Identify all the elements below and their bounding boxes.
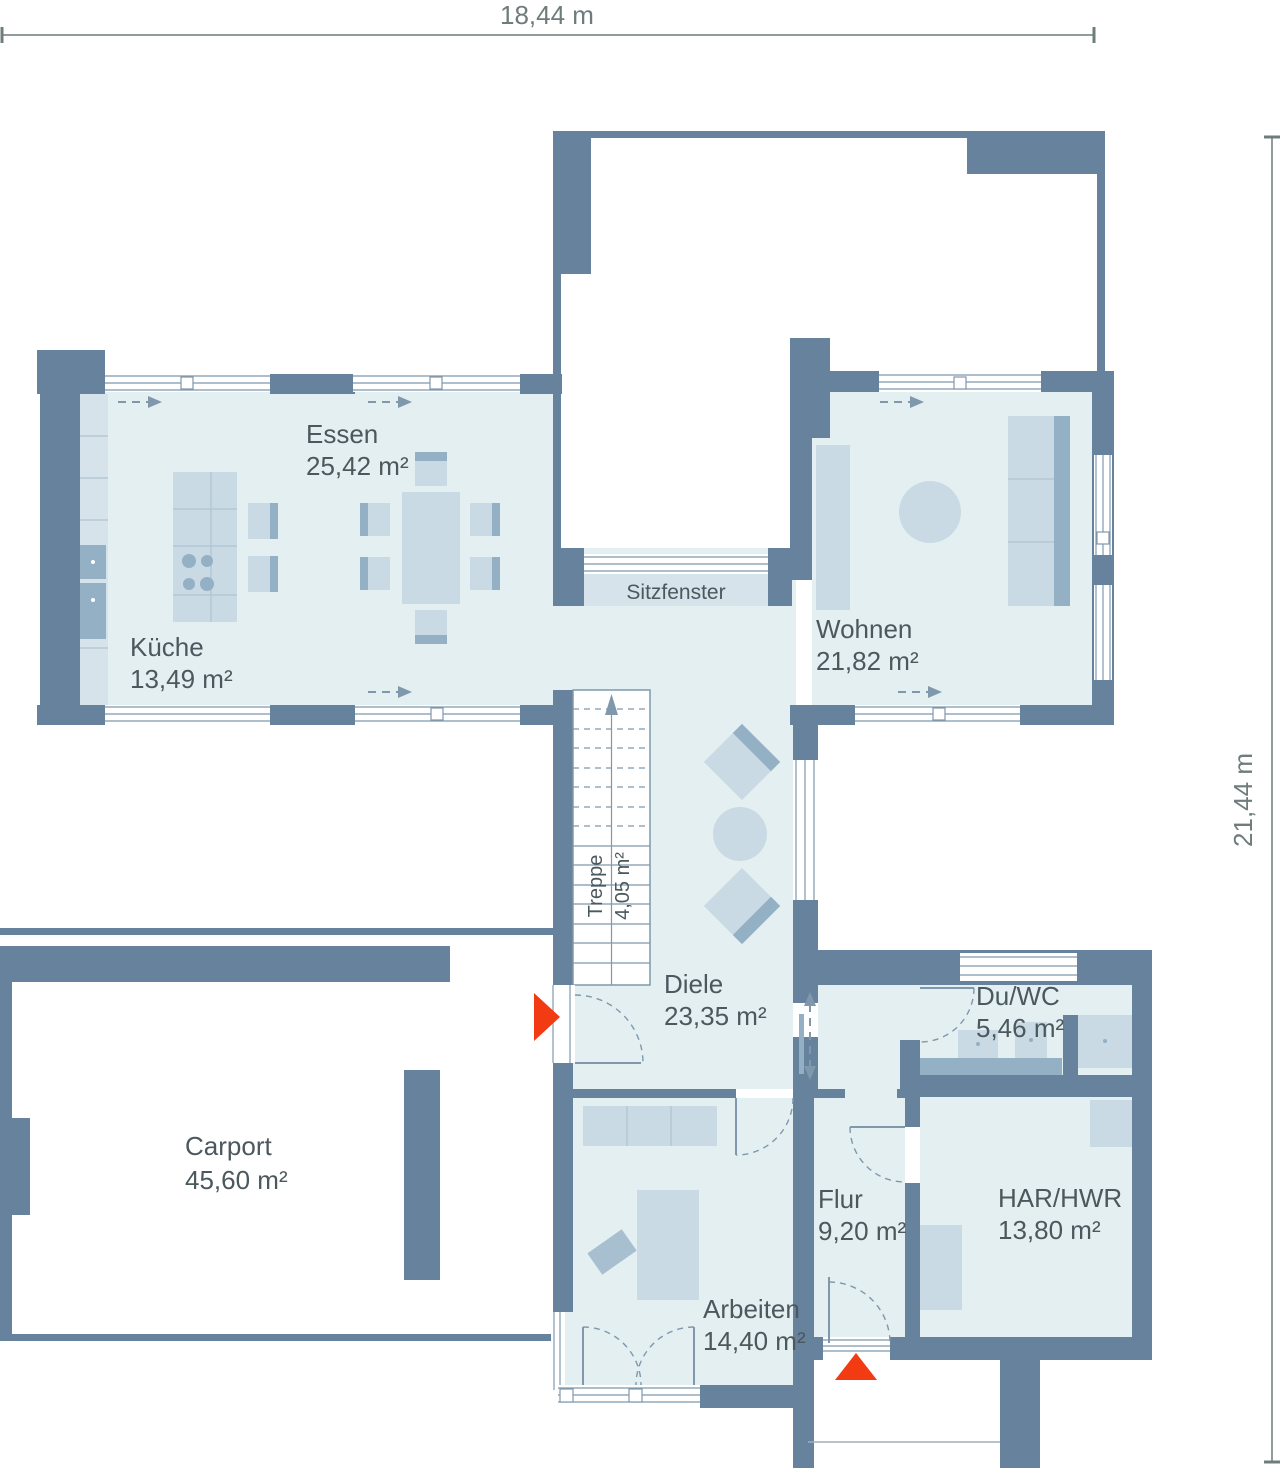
window-wohnen-bottom bbox=[855, 705, 1020, 723]
carport-pillar bbox=[404, 1070, 440, 1280]
appliance bbox=[1090, 1100, 1135, 1147]
label-diele-name: Diele bbox=[664, 969, 723, 999]
cooktop-burner bbox=[183, 578, 195, 590]
window-sitzfenster bbox=[584, 554, 768, 574]
staircase bbox=[573, 690, 650, 985]
dimension-top: 18,44 m bbox=[2, 0, 1094, 43]
window-kueche-top bbox=[105, 374, 270, 392]
label-carport-area: 45,60 m² bbox=[185, 1165, 288, 1195]
label-kueche-name: Küche bbox=[130, 632, 204, 662]
dimension-width-label: 18,44 m bbox=[500, 0, 594, 30]
label-sitzfenster: Sitzfenster bbox=[626, 581, 725, 604]
window-kueche-bottom bbox=[105, 705, 270, 723]
label-arbeiten-name: Arbeiten bbox=[703, 1294, 800, 1324]
label-harhwr-name: HAR/HWR bbox=[998, 1183, 1122, 1213]
label-wohnen-name: Wohnen bbox=[816, 614, 912, 644]
cooktop-burner bbox=[200, 577, 214, 591]
window-wohnen-right-1 bbox=[1094, 455, 1112, 555]
label-flur-area: 9,20 m² bbox=[818, 1216, 906, 1246]
dining-table bbox=[402, 492, 460, 604]
side-table bbox=[713, 807, 767, 861]
office-shelf bbox=[583, 1106, 717, 1146]
window-diele-tall bbox=[793, 760, 818, 900]
coffee-table bbox=[899, 481, 961, 543]
label-essen-name: Essen bbox=[306, 419, 378, 449]
bath-counter bbox=[912, 1058, 1062, 1075]
cooktop-burner bbox=[201, 555, 213, 567]
label-carport-name: Carport bbox=[185, 1131, 272, 1161]
sofa-seat bbox=[1008, 416, 1054, 606]
window-essen-top bbox=[353, 374, 520, 392]
label-wohnen-area: 21,82 m² bbox=[816, 646, 919, 676]
label-diele-area: 23,35 m² bbox=[664, 1001, 767, 1031]
dimension-height-label: 21,44 m bbox=[1228, 753, 1258, 847]
label-arbeiten-area: 14,40 m² bbox=[703, 1326, 806, 1356]
kitchen-fridge bbox=[80, 583, 106, 639]
window-duwc bbox=[960, 953, 1077, 981]
kitchen-island bbox=[173, 472, 237, 622]
side-entrance-arrow-icon bbox=[835, 1353, 877, 1380]
label-flur-name: Flur bbox=[818, 1184, 863, 1214]
sideboard bbox=[816, 445, 850, 610]
cooktop-burner bbox=[182, 554, 196, 568]
appliance bbox=[920, 1225, 962, 1310]
label-duwc-name: Du/WC bbox=[976, 981, 1060, 1011]
door-sliding-diele bbox=[799, 992, 816, 1080]
label-essen-area: 25,42 m² bbox=[306, 451, 409, 481]
label-kueche-area: 13,49 m² bbox=[130, 664, 233, 694]
label-treppe-name: Treppe bbox=[585, 855, 607, 918]
dimension-right: 21,44 m bbox=[1228, 137, 1280, 1462]
sofa-back bbox=[1054, 416, 1070, 606]
window-wohnen-right-2 bbox=[1094, 585, 1112, 680]
window-wohnen-top bbox=[879, 373, 1041, 392]
label-treppe-area: 4,05 m² bbox=[612, 852, 634, 920]
label-duwc-area: 5,46 m² bbox=[976, 1013, 1064, 1043]
desk bbox=[637, 1190, 699, 1300]
window-essen-bottom bbox=[355, 705, 520, 723]
floor-plan-canvas: 18,44 m 21,44 m Essen 25,42 m² Küche 13,… bbox=[0, 0, 1280, 1468]
label-harhwr-area: 13,80 m² bbox=[998, 1215, 1101, 1245]
window-sidelight-arbeiten bbox=[551, 1312, 563, 1390]
